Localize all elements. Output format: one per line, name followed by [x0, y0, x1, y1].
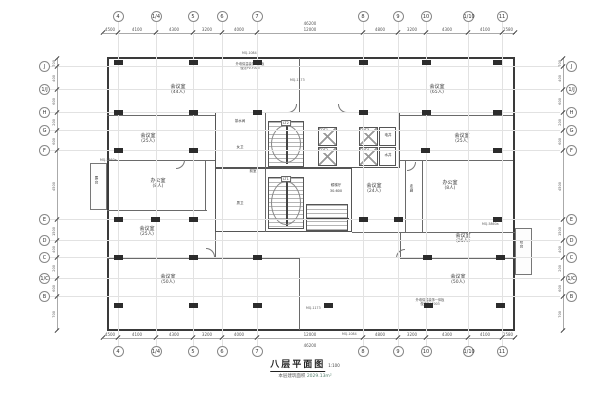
axis-bubble-col-bottom: 1/10	[463, 346, 474, 357]
axis-bubble-col-top: 4	[113, 11, 124, 22]
axis-bubble-row-left: 1/C	[39, 273, 50, 284]
dimension-value-right: 600	[558, 98, 562, 105]
wall-interior	[107, 160, 217, 161]
room-label-office-west: 办公室(8人)	[150, 178, 165, 189]
stair-lt2-label: LT2	[281, 120, 291, 126]
structural-column	[359, 217, 368, 222]
stair-lt2: LT2	[268, 121, 304, 167]
area-line: 本层建筑面积 2029.13m²	[270, 373, 340, 379]
wall-interior	[405, 160, 406, 232]
structural-column	[189, 148, 198, 153]
area-value: 2029.13m²	[307, 374, 332, 379]
dimension-value-left: 1500	[52, 227, 56, 236]
axis-bubble-row-right: C	[566, 252, 577, 263]
balcony-right-label: 阳台	[520, 240, 525, 249]
dimension-line-right	[563, 58, 564, 330]
wall-interior	[352, 232, 515, 233]
structural-column	[493, 217, 502, 222]
axis-bubble-col-bottom: 8	[358, 346, 369, 357]
axis-bubble-row-left: F	[39, 145, 50, 156]
room-label-office-east: 办公室(8人)	[442, 180, 457, 191]
dimension-value-right: 400	[558, 246, 562, 253]
structural-column	[493, 110, 502, 115]
room-label-meeting-50-se: 会议室(50人)	[450, 274, 465, 285]
dimension-tick	[55, 328, 60, 333]
structural-column	[189, 217, 198, 222]
dimension-value-top: 4100	[125, 27, 149, 32]
grid-line-vertical	[193, 22, 194, 348]
axis-bubble-row-right: H	[566, 107, 577, 118]
grid-line-horizontal	[40, 240, 560, 241]
axis-bubble-row-right: 1/C	[566, 273, 577, 284]
structural-column	[394, 217, 403, 222]
door-arc	[176, 160, 185, 169]
corridor-label: 走廊	[410, 184, 415, 193]
grid-line-horizontal	[40, 278, 560, 279]
dimension-value-right: 600	[558, 285, 562, 292]
dimension-value-bottom: 4800	[368, 332, 392, 337]
dimension-line-left	[57, 58, 58, 330]
dimension-value-left: 600	[52, 285, 56, 292]
curtain-wall-tag: MQ-5860a	[482, 222, 499, 226]
axis-bubble-row-left: E	[39, 214, 50, 225]
curtain-wall-tag: MQ-1084	[342, 332, 357, 336]
axis-bubble-col-bottom: 10	[421, 346, 432, 357]
dimension-value-right: 200	[558, 265, 562, 272]
dimension-value-top: 4300	[435, 27, 459, 32]
axis-bubble-col-top: 8	[358, 11, 369, 22]
axis-bubble-col-top: 5	[188, 11, 199, 22]
structural-column	[493, 60, 502, 65]
structural-column	[114, 217, 123, 222]
wall-exterior-bottom	[107, 329, 515, 331]
wall-interior	[107, 258, 300, 259]
structural-column	[114, 110, 123, 115]
stair-lt1-label: LT1	[281, 176, 291, 182]
grid-line-vertical	[118, 22, 119, 348]
structural-column	[422, 60, 431, 65]
structural-column	[189, 60, 198, 65]
shaft-water-label: 水井	[385, 153, 392, 157]
structural-column	[423, 255, 432, 260]
dimension-value-right: 600	[558, 138, 562, 145]
grid-line-vertical	[257, 22, 258, 348]
structural-column	[421, 148, 430, 153]
wall-interior	[107, 210, 207, 211]
grid-line-horizontal	[40, 296, 560, 297]
drawing-title: 八层平面图	[270, 360, 325, 372]
grid-line-vertical	[398, 22, 399, 348]
dimension-value-bottom: 4100	[125, 332, 149, 337]
axis-bubble-row-left: B	[39, 291, 50, 302]
wall-interior	[422, 160, 423, 232]
grid-line-vertical	[502, 22, 503, 348]
dimension-value-top: 3200	[400, 27, 424, 32]
axis-bubble-row-left: 1/J	[39, 84, 50, 95]
structural-column	[422, 110, 431, 115]
axis-bubble-col-bottom: 9	[393, 346, 404, 357]
structural-column	[359, 60, 368, 65]
axis-bubble-col-top: 9	[393, 11, 404, 22]
axis-bubble-row-right: D	[566, 235, 577, 246]
structural-column	[114, 255, 123, 260]
room-label-meeting-25-west: 会议室(25人)	[140, 133, 155, 144]
structural-column	[496, 255, 505, 260]
curtain-wall-tag: MQ-1084	[242, 51, 257, 55]
grid-line-vertical	[156, 22, 157, 348]
wc-female-label: 女卫	[237, 145, 244, 149]
axis-bubble-col-top: 1/4	[151, 11, 162, 22]
grid-line-vertical	[426, 22, 427, 348]
structural-column	[253, 110, 262, 115]
anteroom-label: 前室	[250, 169, 257, 173]
axis-bubble-row-left: C	[39, 252, 50, 263]
dimension-line-top	[103, 33, 515, 34]
wall-interior	[400, 115, 513, 116]
wall-exterior-left	[107, 57, 109, 331]
dimension-value-top: 4100	[473, 27, 497, 32]
structural-column	[253, 303, 262, 308]
door-arc	[206, 248, 215, 257]
grid-line-vertical	[222, 22, 223, 348]
dimension-value-left: 400	[52, 75, 56, 82]
axis-bubble-col-bottom: 6	[217, 346, 228, 357]
structural-column	[324, 303, 333, 308]
axis-bubble-col-bottom: 4	[113, 346, 124, 357]
dimension-value-right: 200	[558, 119, 562, 126]
elevator-lobby-label: 候梯厅	[331, 183, 342, 187]
structural-column	[114, 60, 123, 65]
grid-line-vertical	[468, 22, 469, 348]
curtain-wall-tag: MQ-1173	[306, 306, 321, 310]
dimension-value-right: 4500	[558, 182, 562, 191]
dimension-value-bottom: 4100	[473, 332, 497, 337]
dimension-value-right: 700	[558, 311, 562, 318]
room-label-meeting-24: 会议室(24人)	[366, 183, 381, 194]
dimension-value-left: 700	[52, 311, 56, 318]
curtain-wall-tag: MQ-5860a	[100, 158, 117, 162]
structural-column	[189, 110, 198, 115]
grid-line-horizontal	[40, 66, 560, 67]
structural-column	[114, 303, 123, 308]
floor-plan-canvas: 露台 阳台 LT2 LT1 DT1 DT2 DT3 DT4 电井 水井 茶水间 …	[0, 0, 600, 400]
room-label-meeting-50-sw: 会议室(50人)	[160, 274, 175, 285]
axis-bubble-row-left: J	[39, 61, 50, 72]
dimension-value-left: 600	[52, 98, 56, 105]
structural-column	[493, 148, 502, 153]
dimension-value-left: 200	[52, 119, 56, 126]
stair-secondary	[306, 204, 348, 231]
balcony-right	[515, 228, 532, 275]
area-label: 本层建筑面积	[278, 374, 305, 379]
dimension-value-bottom: 4000	[227, 332, 251, 337]
axis-bubble-col-top: 11	[497, 11, 508, 22]
balcony-left-label: 露台	[95, 176, 100, 185]
dimension-total-top: 46200	[298, 21, 322, 26]
axis-bubble-col-top: 6	[217, 11, 228, 22]
dimension-value-top: 3200	[195, 27, 219, 32]
dimension-value-top: 4800	[368, 27, 392, 32]
dimension-value-left: 400	[52, 246, 56, 253]
axis-bubble-row-left: D	[39, 235, 50, 246]
dimension-value-top: 4000	[227, 27, 251, 32]
title-block: 八层平面图1:100 本层建筑面积 2029.13m²	[270, 352, 340, 379]
tea-room-label: 茶水间	[235, 119, 246, 123]
dimension-value-right: 1500	[558, 227, 562, 236]
axis-bubble-col-top: 7	[252, 11, 263, 22]
dimension-value-bottom: 12000	[298, 332, 322, 337]
axis-bubble-row-right: G	[566, 125, 577, 136]
dimension-value-left: 4500	[52, 182, 56, 191]
grid-line-vertical	[363, 22, 364, 348]
dimension-value-bottom: 4300	[435, 332, 459, 337]
axis-bubble-col-top: 1/10	[463, 11, 474, 22]
axis-bubble-row-left: H	[39, 107, 50, 118]
dimension-value-top: 12000	[298, 27, 322, 32]
wall-exterior-right	[513, 57, 515, 331]
grid-line-horizontal	[40, 130, 560, 131]
structural-column	[424, 303, 433, 308]
structural-column	[496, 303, 505, 308]
axis-bubble-col-top: 10	[421, 11, 432, 22]
dimension-value-bottom: 3200	[400, 332, 424, 337]
structural-column	[253, 60, 262, 65]
axis-bubble-row-right: 1/J	[566, 84, 577, 95]
wall-interior	[205, 160, 206, 210]
structural-column	[114, 148, 123, 153]
wall-interior	[299, 258, 300, 330]
door-arc	[407, 162, 416, 171]
axis-bubble-col-bottom: 11	[497, 346, 508, 357]
dimension-value-bottom: 3200	[195, 332, 219, 337]
dimension-value-right: 400	[558, 75, 562, 82]
balcony-left	[90, 163, 107, 210]
drawing-scale: 1:100	[328, 363, 340, 368]
axis-bubble-row-right: J	[566, 61, 577, 72]
wall-exterior-top	[107, 57, 515, 59]
axis-bubble-row-right: B	[566, 291, 577, 302]
structural-column	[189, 303, 198, 308]
dimension-total-bottom: 46200	[298, 343, 322, 348]
room-label-meeting-25-sw: 会议室(25人)	[139, 226, 154, 237]
axis-bubble-col-bottom: 7	[252, 346, 263, 357]
grid-line-horizontal	[40, 89, 560, 90]
axis-bubble-row-right: F	[566, 145, 577, 156]
structural-column	[253, 255, 262, 260]
structural-column	[189, 255, 198, 260]
dimension-value-top: 4300	[162, 27, 186, 32]
axis-bubble-row-left: G	[39, 125, 50, 136]
dimension-line-bottom	[103, 338, 515, 339]
wall-interior	[400, 160, 513, 161]
dimension-value-bottom: 4300	[162, 332, 186, 337]
stair-lt1: LT1	[268, 177, 304, 229]
wall-interior	[107, 115, 217, 116]
axis-bubble-row-right: E	[566, 214, 577, 225]
structural-column	[359, 110, 368, 115]
dimension-value-left: 200	[52, 265, 56, 272]
structural-column	[151, 217, 160, 222]
axis-bubble-col-bottom: 1/4	[151, 346, 162, 357]
dimension-value-left: 600	[52, 138, 56, 145]
wc-male-label: 男卫	[237, 201, 244, 205]
floor-elevation: 30.600	[330, 189, 342, 193]
dimension-tick	[561, 328, 566, 333]
axis-bubble-col-bottom: 5	[188, 346, 199, 357]
shaft-electrical-label: 电井	[385, 133, 392, 137]
curtain-wall-tag: MQ-1173	[290, 78, 305, 82]
